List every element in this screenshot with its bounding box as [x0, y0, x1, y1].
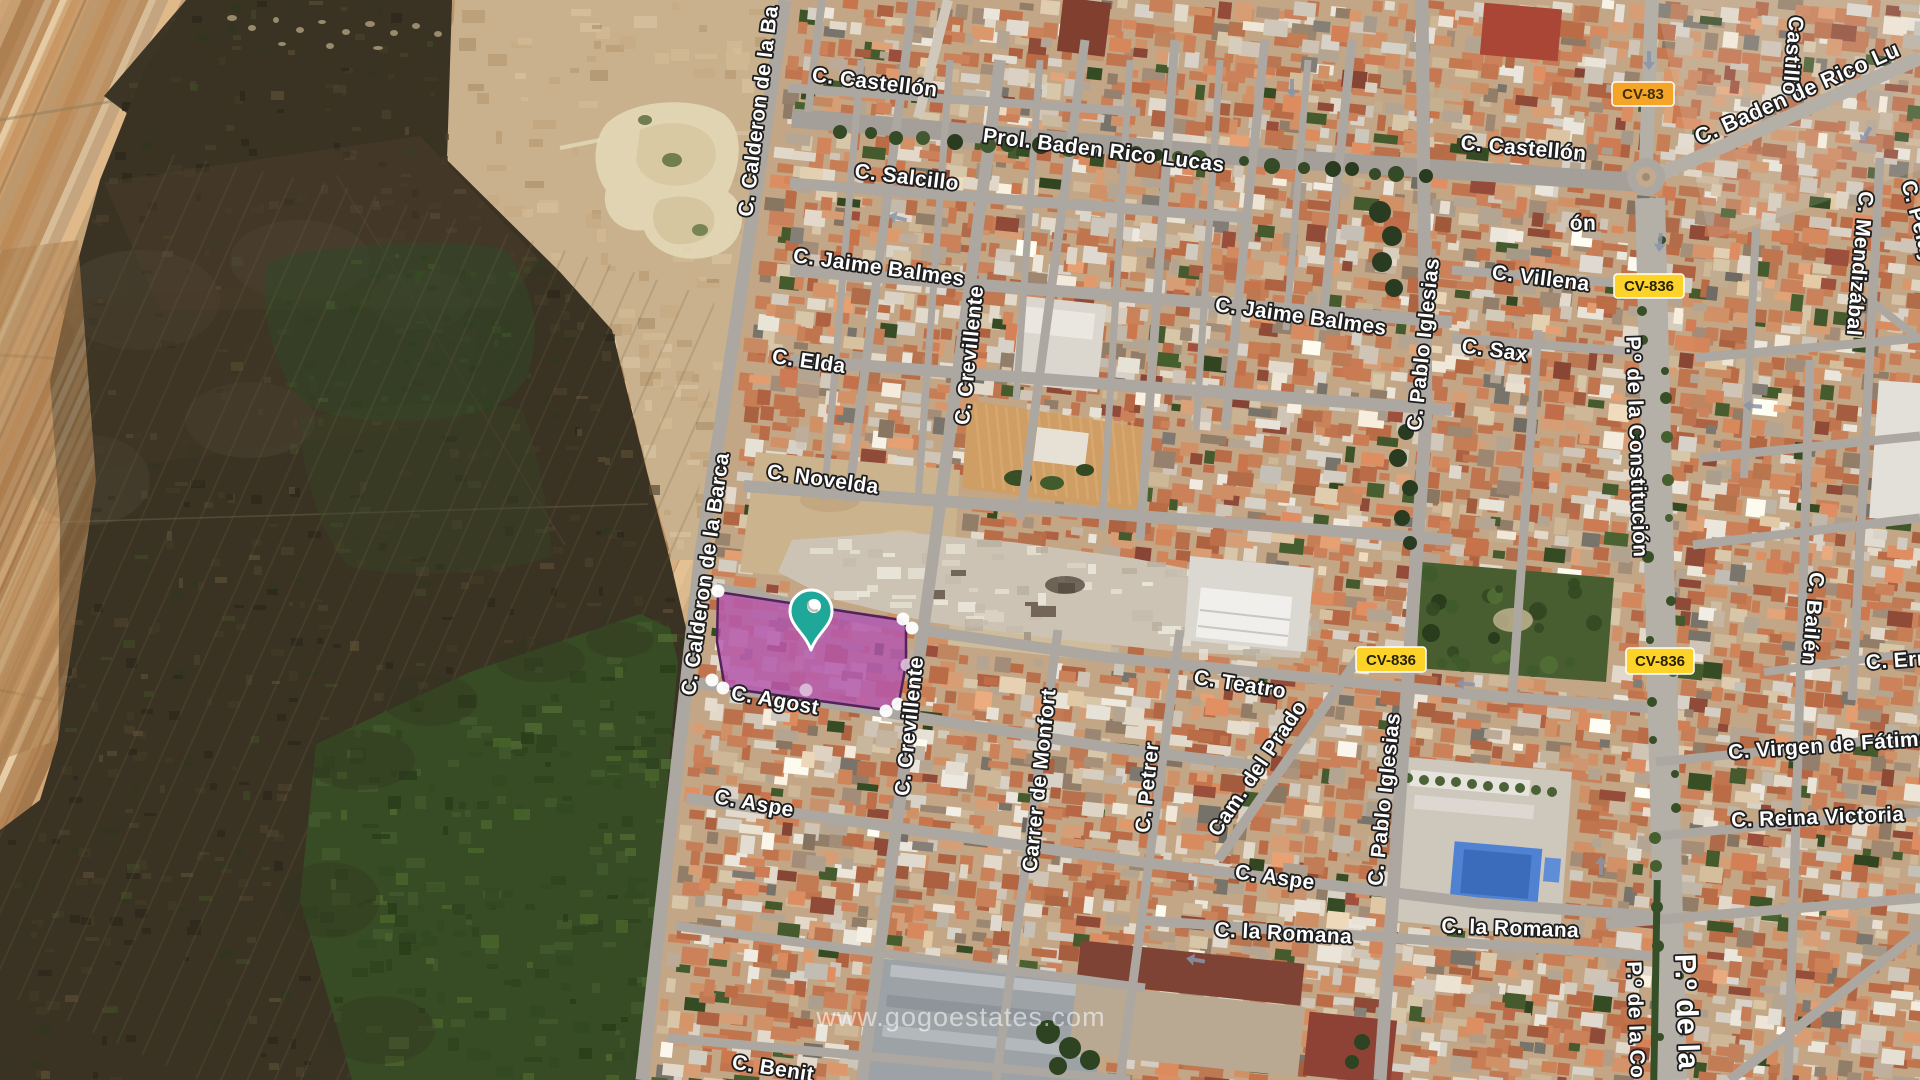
svg-text:C. la Romana: C. la Romana — [1441, 915, 1580, 943]
svg-text:www.gogoestates.com: www.gogoestates.com — [815, 1002, 1105, 1032]
svg-text:CV-836: CV-836 — [1624, 278, 1674, 295]
svg-text:ón: ón — [1570, 212, 1596, 235]
svg-text:CV-83: CV-83 — [1622, 86, 1664, 103]
svg-text:P.º de la: P.º de la — [1668, 953, 1705, 1070]
svg-text:P.º de la Co: P.º de la Co — [1622, 961, 1649, 1079]
svg-text:CV-836: CV-836 — [1635, 653, 1685, 670]
svg-text:CV-836: CV-836 — [1366, 652, 1416, 669]
